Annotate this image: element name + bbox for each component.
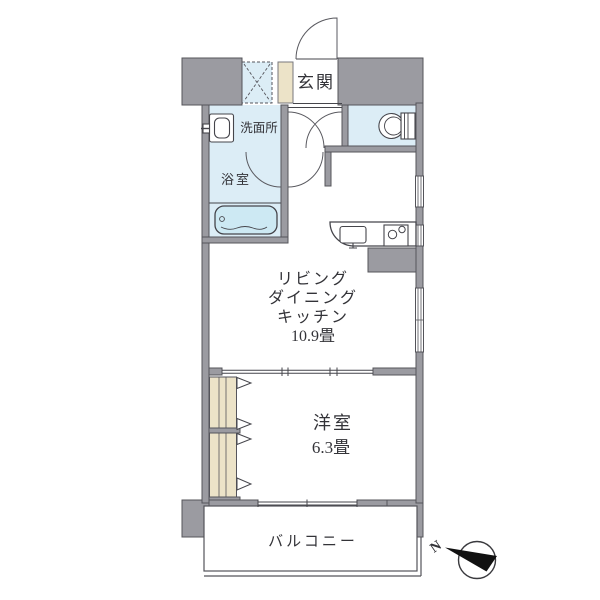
balcony-label: バルコニー	[268, 534, 358, 550]
entrance-door-arc	[296, 18, 337, 59]
window-right-2	[416, 225, 424, 246]
ldk-entry-wall-stub	[325, 152, 331, 186]
closet-divider-wall	[209, 428, 240, 433]
toilet-icon	[379, 113, 415, 139]
partition-wall-left	[209, 368, 222, 375]
window-right-3	[416, 288, 424, 352]
partition-wall-right	[373, 368, 416, 375]
stove-icon	[384, 225, 408, 246]
kitchen-side-block	[368, 248, 416, 272]
top-left-wall-block	[182, 58, 242, 105]
ldk-label-line2: ダイニング	[268, 289, 358, 307]
north-label: N	[428, 538, 445, 556]
bathroom-label: 浴室	[221, 172, 251, 187]
entrance-label: 玄関	[297, 73, 335, 92]
hall-bath-wall	[281, 105, 288, 243]
compass: N	[428, 538, 497, 578]
closet-upper	[210, 377, 237, 428]
bathroom-south-wall	[202, 237, 288, 243]
bedroom-label: 洋室	[313, 413, 353, 433]
hall-toilet-wall	[342, 105, 348, 148]
bathtub-icon	[215, 206, 277, 234]
hall-south-wall	[325, 146, 416, 152]
closet-lower	[210, 433, 237, 497]
ldk-label-line1: リビング	[277, 270, 349, 288]
bedroom-south-wall-left	[209, 500, 258, 506]
bedroom-size-label: 6.3畳	[312, 438, 350, 457]
bedroom-south-wall-right	[357, 500, 387, 506]
top-right-wall-block	[338, 58, 423, 105]
ldk-size-label: 10.9畳	[291, 328, 335, 345]
left-outer-wall	[202, 105, 209, 503]
ldk-label-line3: キッチン	[277, 309, 349, 326]
washroom-label: 洗面所	[240, 121, 278, 135]
toilet-room	[379, 113, 415, 139]
washer-space	[242, 62, 272, 103]
floor-plan-svg: N 玄関 洗面所 浴室 リビング ダイニング キッチン 10.9畳 洋室 6.3…	[0, 0, 600, 600]
window-right-1	[416, 176, 424, 207]
floor-plan-page: { "colors": { "wall": "#9b9ba1", "wall_o…	[0, 0, 600, 600]
shoe-cabinet	[278, 62, 293, 103]
